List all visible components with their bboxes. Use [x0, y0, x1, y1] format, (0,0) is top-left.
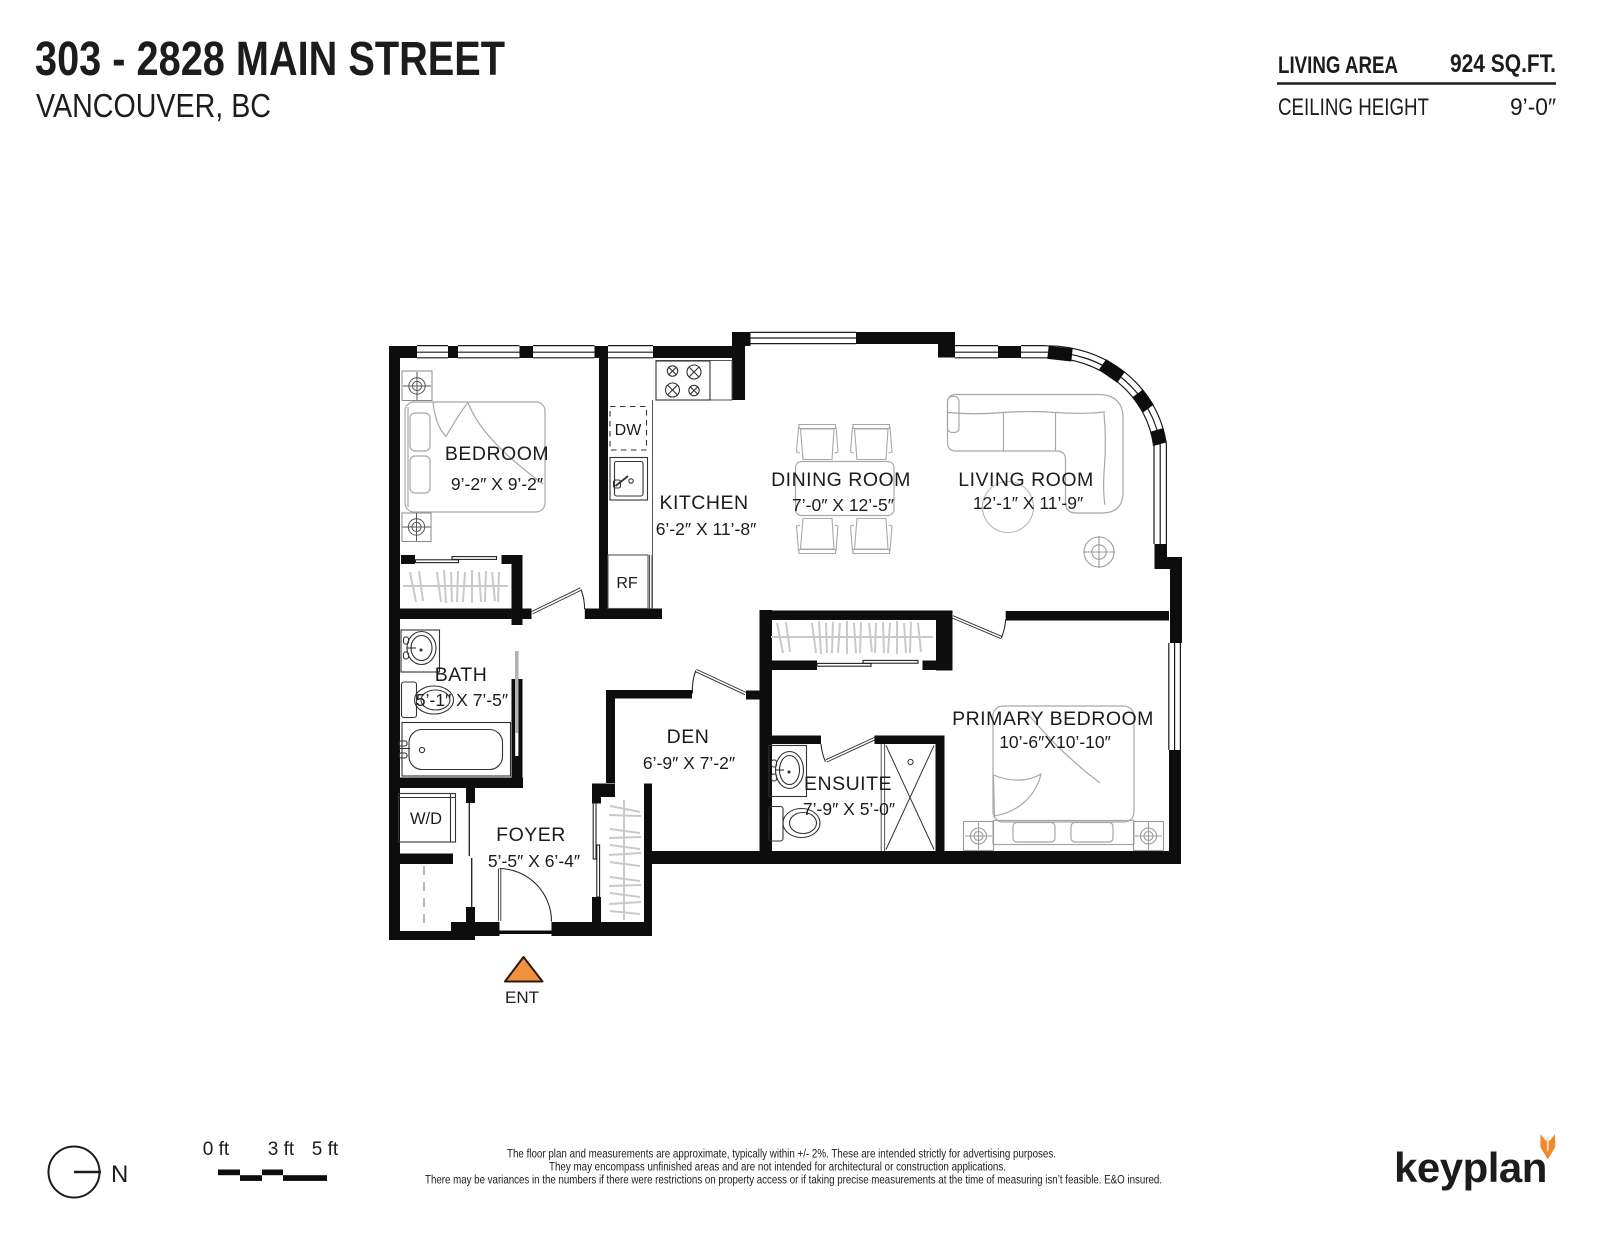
- svg-text:3 ft: 3 ft: [268, 1139, 295, 1160]
- svg-text:The floor plan and measurement: The floor plan and measurements are appr…: [507, 1147, 1056, 1161]
- svg-text:ENT: ENT: [505, 988, 539, 1007]
- svg-text:303 - 2828 MAIN STREET: 303 - 2828 MAIN STREET: [35, 33, 505, 86]
- svg-text:FOYER: FOYER: [496, 824, 566, 846]
- svg-text:BATH: BATH: [435, 664, 488, 686]
- svg-text:N: N: [111, 1161, 128, 1188]
- svg-text:6’-9″ X 7’-2″: 6’-9″ X 7’-2″: [643, 753, 735, 773]
- svg-text:5’-1″ X 7’-5″: 5’-1″ X 7’-5″: [416, 690, 508, 710]
- svg-text:DINING ROOM: DINING ROOM: [771, 469, 911, 491]
- svg-text:10’-6″X10’-10″: 10’-6″X10’-10″: [999, 732, 1111, 752]
- svg-text:keyplan: keyplan: [1394, 1144, 1547, 1191]
- svg-text:12’-1″ X 11’-9″: 12’-1″ X 11’-9″: [973, 493, 1083, 513]
- svg-text:VANCOUVER, BC: VANCOUVER, BC: [36, 87, 271, 124]
- svg-text:LIVING AREA: LIVING AREA: [1278, 52, 1398, 79]
- svg-text:7’-9″ X 5’-0″: 7’-9″ X 5’-0″: [803, 799, 895, 819]
- svg-text:LIVING ROOM: LIVING ROOM: [958, 469, 1094, 491]
- svg-text:They may encompass unfinished: They may encompass unfinished areas and …: [549, 1160, 1006, 1174]
- svg-text:ENSUITE: ENSUITE: [804, 773, 892, 795]
- svg-text:DEN: DEN: [667, 726, 710, 748]
- svg-text:RF: RF: [616, 575, 638, 592]
- svg-text:7’-0″ X 12’-5″: 7’-0″ X 12’-5″: [792, 495, 894, 515]
- svg-text:KITCHEN: KITCHEN: [659, 492, 748, 514]
- svg-text:CEILING HEIGHT: CEILING HEIGHT: [1278, 94, 1429, 121]
- svg-text:6’-2″ X 11’-8″: 6’-2″ X 11’-8″: [656, 519, 757, 539]
- svg-text:5’-5″ X 6’-4″: 5’-5″ X 6’-4″: [488, 851, 580, 871]
- svg-text:There may be variances in the: There may be variances in the numbers if…: [425, 1173, 1162, 1187]
- svg-text:DW: DW: [615, 422, 643, 439]
- svg-text:0 ft: 0 ft: [203, 1139, 230, 1160]
- svg-text:9’-2″ X 9’-2″: 9’-2″ X 9’-2″: [451, 474, 543, 494]
- svg-text:5 ft: 5 ft: [312, 1139, 339, 1160]
- svg-text:PRIMARY BEDROOM: PRIMARY BEDROOM: [952, 708, 1154, 730]
- svg-text:W/D: W/D: [410, 810, 442, 828]
- svg-text:9’-0″: 9’-0″: [1510, 94, 1556, 121]
- svg-text:924 SQ.FT.: 924 SQ.FT.: [1450, 50, 1556, 78]
- svg-text:BEDROOM: BEDROOM: [445, 443, 549, 465]
